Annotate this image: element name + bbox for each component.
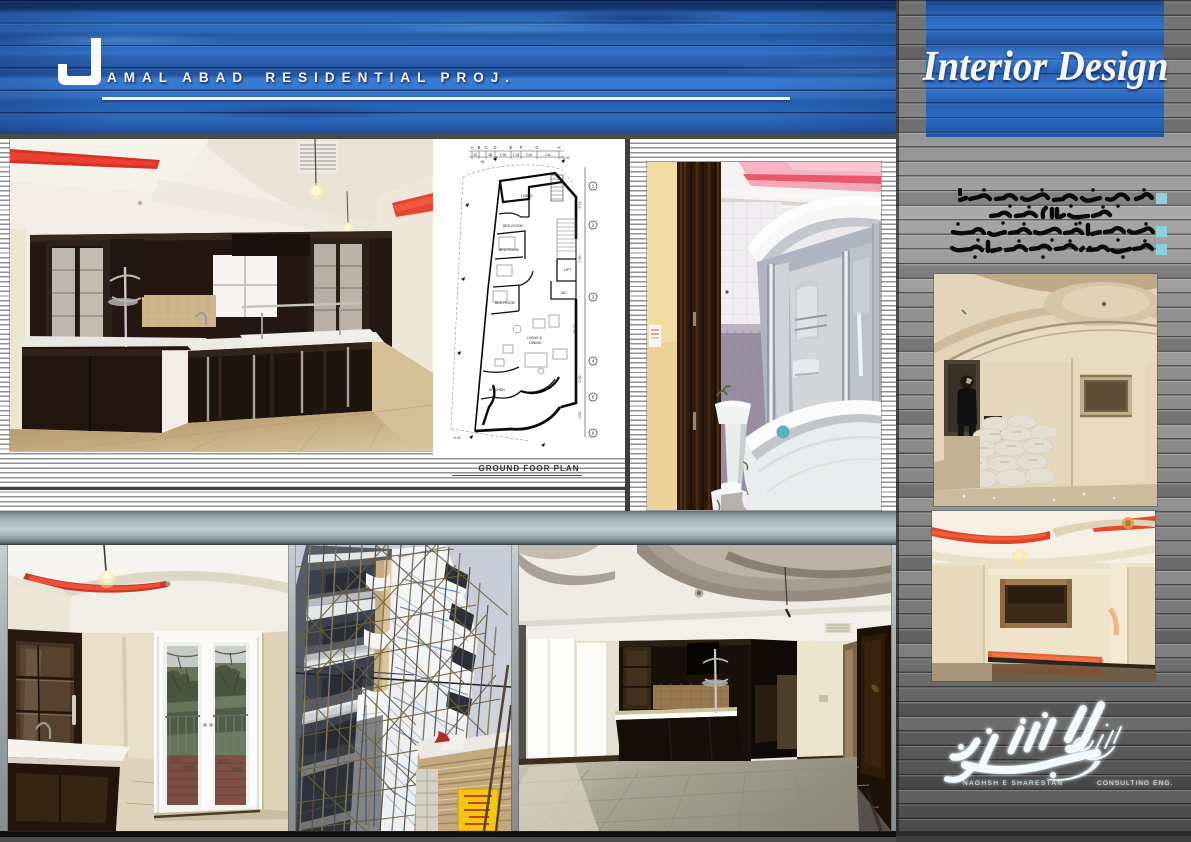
svg-text:BED ROOM: BED ROOM <box>495 301 515 305</box>
svg-text:7.00: 7.00 <box>578 255 582 262</box>
svg-text:+0.00: +0.00 <box>561 156 570 160</box>
svg-text:B: B <box>478 145 481 150</box>
svg-text:F: F <box>520 145 523 150</box>
svg-text:1: 1 <box>592 183 595 188</box>
svg-text:G: G <box>535 145 538 150</box>
svg-text:.62: .62 <box>473 153 478 157</box>
svg-text:LOBBY: LOBBY <box>521 194 534 198</box>
svg-text:LIFT: LIFT <box>564 268 572 272</box>
svg-text:KITCHEN: KITCHEN <box>489 388 505 392</box>
svg-text:1.98: 1.98 <box>500 153 507 157</box>
svg-text:DINING: DINING <box>529 341 542 345</box>
svg-text:BED ROOM: BED ROOM <box>499 248 519 252</box>
svg-text:C: C <box>484 145 487 150</box>
svg-text:.96: .96 <box>480 160 485 164</box>
svg-text:BED ROOM: BED ROOM <box>503 224 523 228</box>
svg-text:H: H <box>557 145 560 150</box>
svg-text:2.40: 2.40 <box>545 153 552 157</box>
svg-text:1.15: 1.15 <box>513 153 520 157</box>
svg-text:D: D <box>493 145 496 150</box>
svg-text:CONSULTING ENG.: CONSULTING ENG. <box>1097 780 1173 787</box>
svg-text:NAGHSH E SHARESTAN: NAGHSH E SHARESTAN <box>963 780 1063 787</box>
svg-text:E: E <box>510 145 513 150</box>
svg-text:5: 5 <box>592 394 595 399</box>
svg-text:LIVING &: LIVING & <box>527 336 543 340</box>
svg-text:3.52: 3.52 <box>578 411 582 418</box>
svg-text:6: 6 <box>592 430 595 435</box>
svg-text:A: A <box>471 145 474 150</box>
svg-text:3.74: 3.74 <box>578 201 582 208</box>
svg-text:2.90: 2.90 <box>578 375 582 382</box>
svg-text:.88: .88 <box>488 153 493 157</box>
svg-text:3: 3 <box>592 294 595 299</box>
svg-text:4: 4 <box>592 358 595 363</box>
svg-text:WC: WC <box>561 291 567 295</box>
svg-text:2.00: 2.00 <box>526 153 533 157</box>
svg-text:2: 2 <box>592 222 595 227</box>
svg-text:-0.60: -0.60 <box>453 436 461 440</box>
